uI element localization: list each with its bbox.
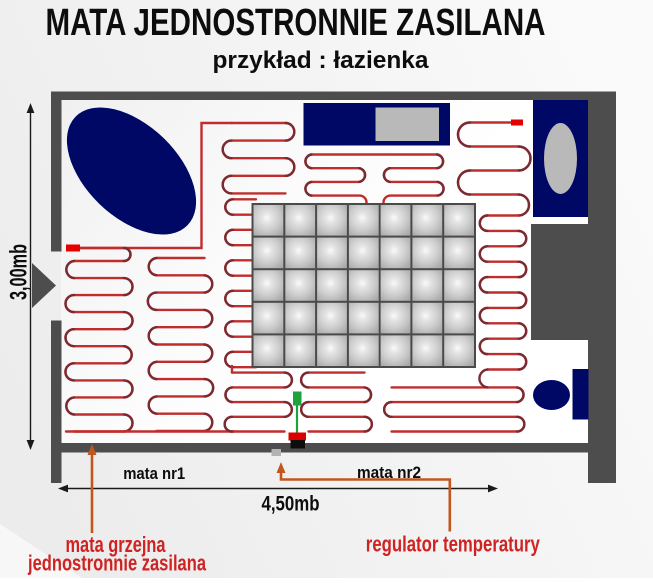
- svg-text:mata nr1: mata nr1: [123, 464, 185, 483]
- svg-text:3,00mb: 3,00mb: [6, 244, 33, 300]
- svg-text:przykład : łazienka: przykład : łazienka: [213, 47, 430, 74]
- svg-text:4,50mb: 4,50mb: [262, 493, 320, 516]
- svg-text:regulator temperatury: regulator temperatury: [366, 532, 541, 557]
- svg-text:MATA JEDNOSTRONNIE ZASILANA: MATA JEDNOSTRONNIE ZASILANA: [46, 2, 546, 44]
- svg-text:jednostronnie zasilana: jednostronnie zasilana: [27, 551, 206, 576]
